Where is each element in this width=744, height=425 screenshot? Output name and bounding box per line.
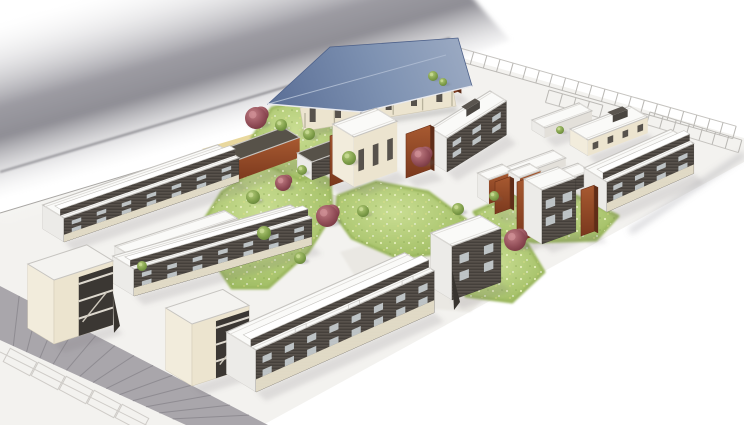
tree-canopy [294, 252, 306, 264]
tree-canopy [303, 128, 315, 140]
tree-canopy [452, 203, 464, 215]
window [358, 148, 364, 171]
tree-highlight [557, 127, 560, 130]
tree-highlight [491, 193, 495, 197]
tree-highlight [430, 73, 434, 77]
tree-canopy [342, 151, 356, 165]
tree-canopy [439, 78, 447, 86]
tree-highlight [454, 205, 458, 209]
tree-highlight [320, 209, 328, 217]
tree-highlight [415, 151, 422, 158]
tree-highlight [508, 233, 516, 241]
window [373, 143, 379, 166]
tree-highlight [248, 192, 253, 197]
tree-canopy [275, 175, 291, 191]
tree-canopy [245, 107, 267, 129]
fin-side [594, 185, 598, 233]
tree-highlight [344, 153, 349, 158]
community-opening [310, 108, 316, 122]
site-rendering-svg [0, 0, 744, 425]
red-maple-tree [504, 228, 530, 251]
tree-highlight [299, 167, 303, 171]
window [387, 138, 393, 161]
tree-canopy [411, 147, 431, 167]
tree-highlight [139, 263, 143, 267]
tree-canopy [489, 191, 499, 201]
red-maple-tree [316, 204, 342, 227]
tree-highlight [277, 121, 281, 125]
tree-canopy [504, 229, 526, 251]
tree-highlight [305, 130, 309, 134]
tree-highlight [249, 111, 257, 119]
tree-canopy [428, 71, 438, 81]
fin-face [581, 185, 594, 236]
tree-highlight [359, 207, 363, 211]
tree-canopy [275, 119, 287, 131]
tree-canopy [246, 190, 260, 204]
tree-canopy [316, 205, 338, 227]
tree-highlight [259, 228, 264, 233]
architectural-rendering-stage [0, 0, 744, 425]
tree-canopy [257, 226, 271, 240]
tree-canopy [297, 165, 307, 175]
tree-highlight [278, 178, 284, 184]
tree-highlight [296, 254, 300, 258]
tree-canopy [137, 261, 147, 271]
tree-canopy [556, 126, 564, 134]
red-maple-tree [411, 147, 435, 168]
fin-side [510, 177, 514, 211]
tree-canopy [357, 205, 369, 217]
stair-tower-west [28, 245, 123, 353]
red-maple-tree [245, 106, 271, 129]
tree-highlight [440, 79, 443, 82]
stair-recess [79, 266, 113, 336]
